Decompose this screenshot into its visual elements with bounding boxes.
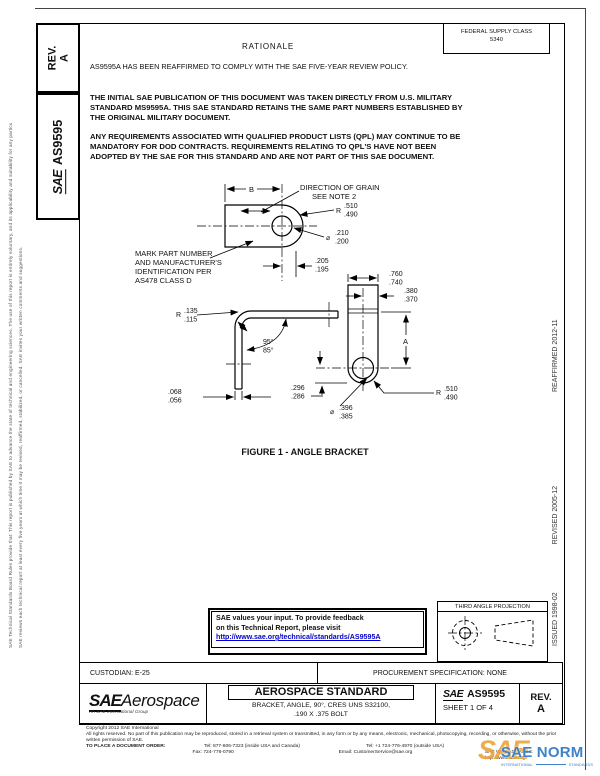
- end-radius-min-2: .490: [444, 395, 458, 402]
- small-hole-min: .200: [335, 239, 349, 246]
- feedback-line1: SAE values your input. To provide feedba…: [216, 614, 419, 624]
- revised-date: REVISED 2005-12: [552, 486, 559, 544]
- federal-supply-class-box: FEDERAL SUPPLY CLASS 5340: [443, 23, 550, 54]
- sidebar-doc-number: AS9595: [51, 119, 65, 164]
- sidebar-rev-label: REV.: [46, 46, 58, 71]
- doc-number: AS9595: [467, 688, 505, 700]
- mark-note-line1: MARK PART NUMBER: [135, 249, 213, 258]
- grain-note-line1: DIRECTION OF GRAIN: [300, 183, 380, 192]
- projection-symbol-icon: [438, 612, 546, 654]
- front-view: .760 .740 .380 .370 A .296 .286 ⌀ .396 .…: [291, 271, 458, 421]
- watermark-sub-left: INTERNATIONAL: [501, 762, 533, 767]
- mark-note-line3: IDENTIFICATION PER: [135, 267, 212, 276]
- hole-end-max: .296: [291, 385, 305, 392]
- third-angle-projection-box: THIRD ANGLE PROJECTION: [437, 601, 548, 662]
- bend-radius-min: .115: [184, 317, 197, 324]
- sae-norm-watermark: SAE SAE NORM INTERNATIONAL STANDARDS: [478, 735, 596, 775]
- diameter-symbol: ⌀: [326, 235, 330, 242]
- thickness-min: .056: [168, 398, 182, 405]
- mark-note-line2: AND MANUFACTURER'S: [135, 258, 222, 267]
- large-hole-min: .385: [339, 414, 353, 421]
- issued-date: ISSUED 1998-02: [552, 592, 559, 646]
- sae-standard-document: { "margins": { "left_disclaimer_1": "SAE…: [0, 0, 600, 776]
- logo-tagline: An SAE International Group: [89, 710, 206, 715]
- figure-caption: FIGURE 1 - ANGLE BRACKET: [241, 447, 369, 457]
- angle-min: 85°: [263, 347, 274, 355]
- doc-type-header: AEROSPACE STANDARD: [228, 685, 414, 700]
- custodian-row: CUSTODIAN: E-25 PROCUREMENT SPECIFICATIO…: [79, 662, 563, 684]
- feedback-box: SAE values your input. To provide feedba…: [208, 608, 427, 655]
- feedback-line2: on this Technical Report, please visit: [216, 624, 419, 634]
- side-view: R .135 .115 95° 85° .068 .056: [168, 302, 338, 405]
- email-address: Email: CustomerService@sae.org: [339, 750, 485, 762]
- feedback-link[interactable]: http://www.sae.org/technical/standards/A…: [216, 633, 419, 643]
- doc-title-line2: .190 X .375 BOLT: [207, 711, 435, 720]
- fsc-value: 5340: [444, 37, 549, 45]
- hole-end-min: .286: [291, 394, 305, 401]
- figure-1-drawing: B DIRECTION OF GRAIN SEE NOTE 2 R .510 .…: [95, 172, 545, 462]
- dim-a-label: A: [403, 337, 408, 346]
- hole-offset-max: .380: [404, 288, 418, 295]
- rationale-title: RATIONALE: [92, 42, 444, 51]
- leg-width-min: .740: [389, 280, 403, 287]
- end-radius-min: .490: [344, 212, 358, 219]
- rev-label: REV.: [530, 692, 551, 703]
- sae-aerospace-logo: SAEAerospace An SAE International Group: [80, 684, 207, 723]
- paragraph-initial-publication: THE INITIAL SAE PUBLICATION OF THIS DOCU…: [90, 93, 464, 122]
- watermark-sub-right: STANDARDS: [569, 762, 593, 767]
- rev-cell: REV. A: [520, 684, 562, 723]
- radius-symbol-2: R: [176, 312, 181, 319]
- small-hole-max: .210: [335, 230, 349, 237]
- doc-number-cell: SAEAS9595 SHEET 1 OF 4: [436, 684, 520, 723]
- procurement-cell: PROCUREMENT SPECIFICATION: NONE: [318, 663, 562, 683]
- radius-symbol-3: R: [436, 390, 441, 397]
- fax-number: Fax: 724-776-0790: [192, 750, 338, 762]
- projection-title: THIRD ANGLE PROJECTION: [438, 602, 547, 612]
- doc-title-line1: BRACKET, ANGLE, 90°, CRES UNS S32100,: [207, 702, 435, 711]
- fsc-label: FEDERAL SUPPLY CLASS: [444, 29, 549, 37]
- bend-radius-max: .135: [184, 308, 198, 315]
- dim-b-label: B: [249, 185, 254, 194]
- sae-logo-icon-2: SAE: [89, 691, 121, 712]
- sheet-number: SHEET 1 OF 4: [443, 703, 519, 712]
- rationale-text: AS9595A HAS BEEN REAFFIRMED TO COMPLY WI…: [90, 62, 470, 71]
- mark-note-line4: AS478 CLASS D: [135, 276, 192, 285]
- page-top-line: [35, 8, 585, 9]
- title-block: SAEAerospace An SAE International Group …: [79, 683, 563, 724]
- watermark-name: SAE NORM: [501, 744, 583, 761]
- end-radius-max: .510: [344, 203, 358, 210]
- hole-edge-max: .205: [315, 258, 329, 265]
- end-radius-max-2: .510: [444, 386, 458, 393]
- standard-title-cell: AEROSPACE STANDARD BRACKET, ANGLE, 90°, …: [207, 684, 436, 723]
- sidebar-doc-number-box: SAEAS9595: [36, 93, 80, 220]
- sae-logo-icon: SAE: [51, 168, 66, 193]
- left-margin-disclaimer-2: SAE reviews each technical report at lea…: [18, 123, 27, 648]
- hole-offset-min: .370: [404, 297, 418, 304]
- sidebar-rev-value: A: [58, 46, 70, 71]
- grain-note-line2: SEE NOTE 2: [312, 192, 356, 201]
- paragraph-qpl: ANY REQUIREMENTS ASSOCIATED WITH QUALIFI…: [90, 132, 464, 161]
- thickness-max: .068: [168, 389, 182, 396]
- reaffirmed-date: REAFFIRMED 2012-11: [552, 319, 559, 392]
- custodian-cell: CUSTODIAN: E-25: [80, 663, 318, 683]
- diameter-symbol-2: ⌀: [330, 409, 334, 416]
- top-view: B DIRECTION OF GRAIN SEE NOTE 2 R .510 .…: [135, 183, 380, 285]
- large-hole-max: .396: [339, 405, 353, 412]
- aerospace-logo-text: Aerospace: [121, 691, 200, 710]
- hole-edge-min: .195: [315, 267, 329, 274]
- angle-max: 95°: [263, 338, 274, 346]
- radius-symbol: R: [336, 208, 341, 215]
- page-right-line: [585, 8, 586, 770]
- rev-value: A: [537, 703, 545, 715]
- revision-dates: ISSUED 1998-02 REVISED 2005-12 REAFFIRME…: [552, 147, 563, 652]
- left-margin-disclaimer-1: SAE Technical Standards Board Rules prov…: [8, 123, 17, 648]
- sidebar-rev-box: REV. A: [36, 23, 80, 93]
- leg-width-max: .760: [389, 271, 403, 278]
- sae-logo-icon-3: SAE: [443, 688, 463, 701]
